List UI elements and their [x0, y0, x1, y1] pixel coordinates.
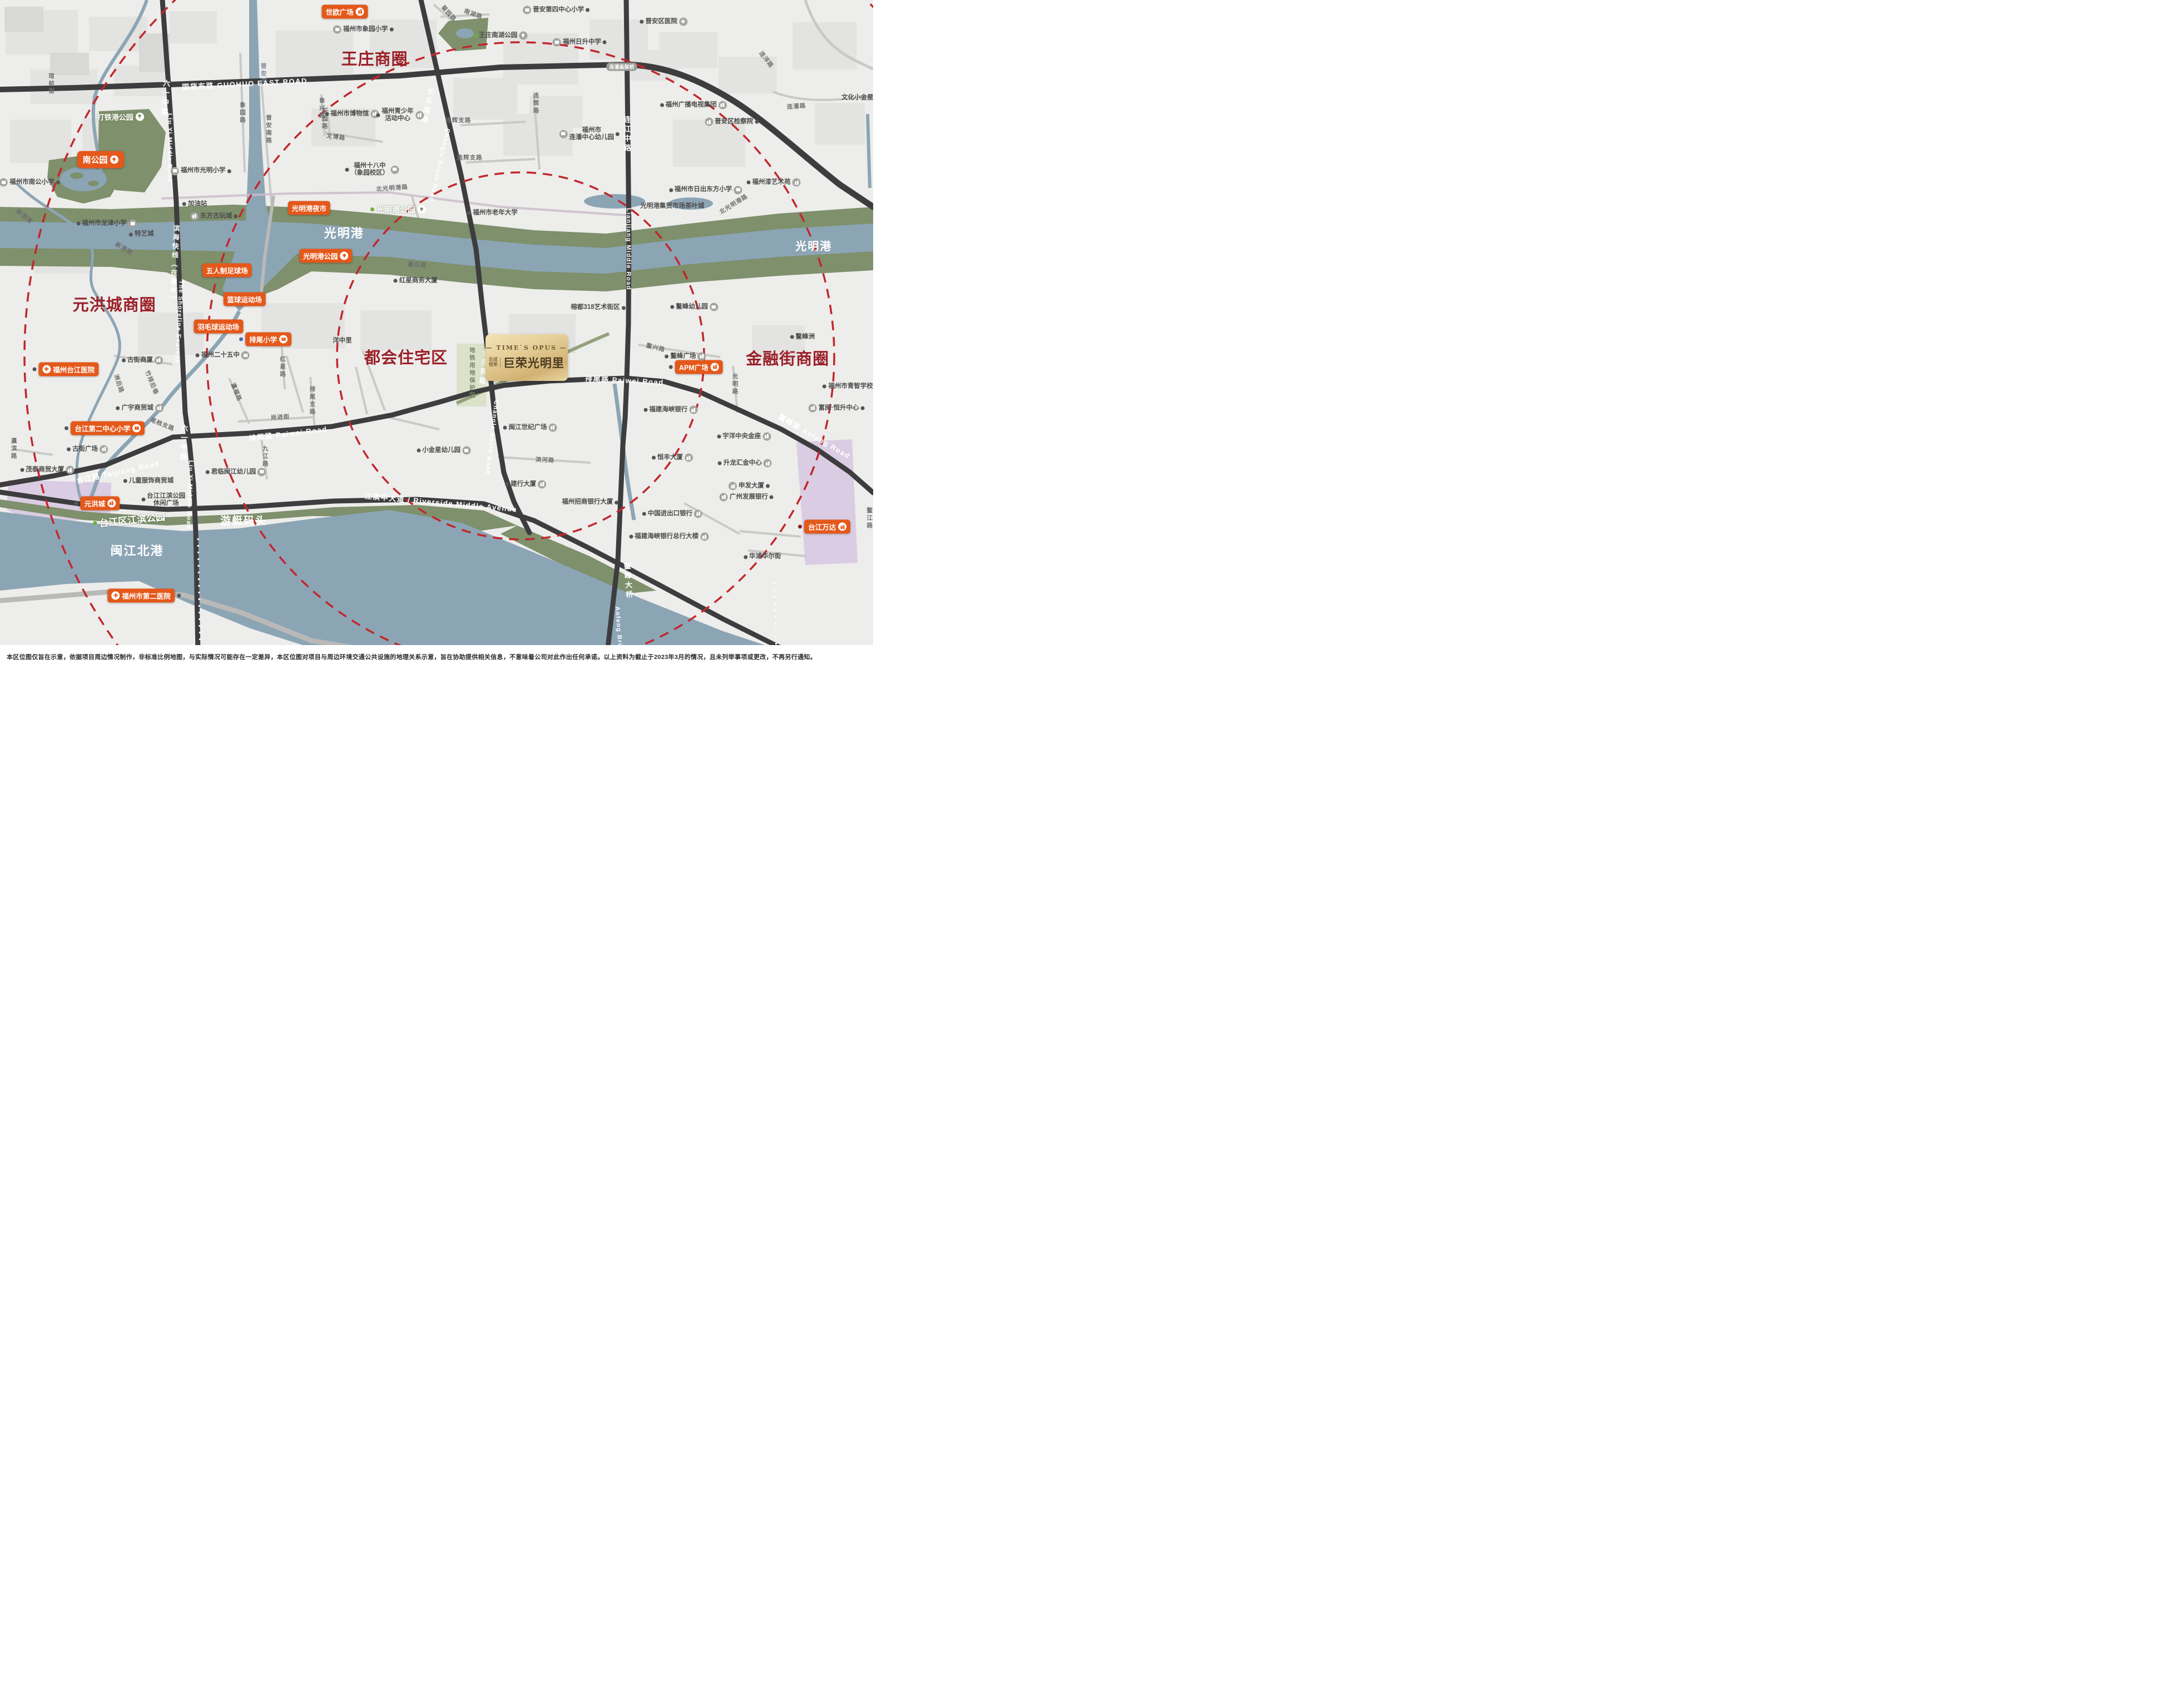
poi-label: 富闽·恒升中心 [809, 404, 865, 412]
label-text: 福州市连潘中心幼儿园 [569, 127, 615, 141]
poi-dot [227, 169, 231, 173]
label-text: 文博路 [326, 132, 346, 142]
label-text: 晋安第四中心小学 [533, 7, 584, 14]
label-text: 福州招商银行大厦 [562, 499, 613, 506]
poi-label: 福建海峡银行 [643, 406, 697, 414]
poi-dot [239, 338, 243, 341]
poi-badge-row: 篮球运动场 [223, 292, 266, 306]
labels-layer: 王庄商圈元洪城商圈都会住宅区金融街商圈光明港光明港闽江北港游艇码头打铁港公园光明… [0, 0, 873, 673]
orange-badge: 福州市第二医院 [107, 588, 175, 602]
book-icon [553, 38, 561, 47]
label-text: 连辉支路 [457, 155, 483, 161]
building-icon [720, 493, 728, 501]
label-text: 连潘高架桥 [609, 63, 634, 70]
label-text: 中国进出口银行 [648, 510, 693, 517]
orange-badge: 羽毛球运动场 [194, 320, 243, 334]
book-icon [257, 468, 266, 476]
poi-dot [766, 484, 770, 488]
cross-icon [111, 591, 120, 599]
book-icon [171, 167, 179, 175]
orange-badge: 元洪城 [81, 496, 120, 510]
poi-label: 福州市博物馆 [325, 110, 379, 118]
building-icon [729, 482, 737, 490]
label-text: 茂泰商贸大厦 [26, 467, 64, 474]
poi-label: 红星商务大厦 [394, 277, 438, 284]
poi-label: 鳌峰洲 [790, 333, 815, 340]
poi-label: 福州市连潘中心幼儿园 [559, 127, 620, 141]
building-icon [548, 423, 557, 432]
label-text: 金融街商圈 [746, 350, 829, 368]
street-name-label: 新港道 [14, 207, 34, 225]
poi-label: 鳌峰广场 [665, 352, 706, 360]
poi-dot [182, 202, 186, 206]
zone-label: 地铁用地保护区 [468, 347, 477, 400]
poi-dot [76, 222, 80, 226]
park-label: 台江区江滨公园 [92, 508, 166, 529]
book-icon [559, 130, 568, 138]
poi-badge-row: 台江第二中心小学 [65, 422, 145, 435]
poi-dot [417, 449, 420, 453]
poi-dot [116, 406, 120, 410]
road-name-label: Lianjiang Middle Road [625, 208, 632, 290]
label-text: 福州青少年活动中心 [382, 108, 414, 122]
poi-dot [177, 593, 181, 597]
poi-dot [670, 305, 674, 309]
poi-badge-row: 南公园 [77, 151, 124, 168]
poi-badge-row: 世欧广场 [322, 4, 368, 18]
park-label: 打铁港公园 [97, 111, 144, 122]
label-text: 光明港公园 [377, 204, 415, 215]
poi-dot [129, 232, 133, 236]
label-text: 福建海峡银行总行大楼 [635, 533, 699, 541]
road-name-label: 鳌峰路 Aofeng Road [777, 411, 853, 460]
park-label: 光明港公园 [370, 204, 426, 215]
book-icon [128, 220, 137, 228]
label-text: 君临闽江幼儿园 [211, 468, 256, 475]
poi-label: 榕都318艺术街区 [571, 304, 625, 311]
project-logo: 巨成 恒荣 [489, 358, 501, 368]
label-text: 鳌江路 [866, 507, 873, 530]
label-text: 竹排后巷 [144, 369, 160, 395]
poi-label: 福州日升中学 [553, 38, 607, 47]
street-name-label: 连辉支路 [457, 153, 483, 162]
label-text: 滨河路 [535, 457, 554, 464]
poi-label: 古街广场 [67, 445, 108, 453]
poi-dot [123, 479, 127, 483]
label-text: 鳌峰路 Aofeng Road [777, 412, 851, 460]
label-text: 南湖路 [463, 8, 484, 21]
poi-dot [389, 28, 393, 32]
label-text: 琯前街 [48, 73, 55, 96]
street-name-label: 北光明港路 [717, 192, 749, 216]
building-icon [694, 509, 702, 518]
mini-badge: 连潘高架桥 [606, 62, 637, 71]
poi-label: 福州广播电视集团 [660, 101, 727, 109]
label-text: 洲后路 [112, 374, 125, 394]
poi-dot [823, 385, 826, 389]
building-icon [711, 363, 719, 371]
poi-dot [196, 354, 200, 358]
label-text: 台江第二中心小学 [75, 423, 130, 434]
poi-badge-row: 福州市第二医院 [107, 588, 181, 602]
poi-label: 福州漆艺术苑 [747, 179, 801, 187]
label-text: 光明港 [795, 240, 832, 252]
poi-label: 台江江滨公园休闲广场 [141, 492, 185, 507]
poi-dot [622, 306, 626, 310]
label-text: 宇洋中央金座 [722, 433, 761, 440]
street-name-label: 光明路 [731, 373, 739, 396]
poi-label: 君临闽江幼儿园 [206, 468, 266, 476]
label-text: 鳌峰幼儿园 [676, 304, 708, 311]
poi-label: 福州市青智学校 [823, 383, 873, 390]
poi-dot [503, 425, 507, 429]
label-text: 北光明港路 [719, 193, 749, 216]
label-text: 台江万达 [808, 522, 836, 532]
project-logo-bottom: 恒荣 [489, 363, 498, 368]
street-name-label: 连洋路 [757, 49, 776, 69]
label-text: 文化小金星幼儿园 [841, 94, 873, 101]
poi-dot [615, 500, 618, 504]
label-text: 福建海峡银行 [649, 407, 687, 414]
street-name-label: 瀛滨路 [10, 437, 18, 460]
street-name-label: 尾档支路 [149, 415, 176, 433]
poi-label: 洋中里 [333, 337, 352, 344]
building-icon [700, 533, 709, 541]
label-text: 福州台江医院 [53, 364, 95, 374]
label-text: 福州市老年大学 [473, 209, 518, 216]
street-name-label: 北光明港路 [376, 182, 408, 193]
orange-badge: 福州台江医院 [38, 362, 98, 376]
book-icon [710, 303, 718, 311]
poi-label: 福州市龙津小学 [76, 220, 137, 228]
poi-dot [93, 521, 97, 525]
poi-dot [67, 447, 71, 451]
orange-badge: 五人制足球场 [202, 263, 252, 277]
label-text: 元洪城 [85, 498, 106, 508]
poi-label: 申发大厦 [729, 482, 770, 490]
river-label: 光明港 [795, 237, 832, 253]
label-text: 瀛福路 [230, 382, 243, 402]
poi-dot [744, 555, 747, 559]
poi-dot [669, 188, 673, 192]
poi-label: 升龙汇金中心 [718, 459, 772, 468]
road-name-label: Liu Yi Middle Road [185, 460, 194, 530]
building-icon [793, 179, 801, 187]
street-name-label: 鳌江路 [865, 507, 873, 530]
label-text: 新港道 [14, 208, 34, 225]
label-text: 台江区江滨公园 [98, 508, 166, 529]
poi-dot [616, 132, 620, 136]
label-text: 洋中里 [333, 337, 352, 344]
building-icon [356, 7, 364, 16]
poi-dot [370, 207, 374, 211]
poi-badge-row: 排尾小学 [239, 333, 291, 346]
street-name-label: 琯前街 [47, 73, 56, 96]
label-text: 瀛滨路 [11, 437, 17, 460]
label-text: APM广场 [679, 361, 709, 372]
project-en-name: — TIME`S OPUS — [486, 344, 567, 351]
street-name-label: 尚进街 [270, 412, 290, 422]
label-text: 打铁港公园 [97, 111, 133, 122]
river-label: 游艇码头 [220, 512, 267, 527]
label-text: 富闽·恒升中心 [819, 404, 859, 412]
label-text: 福州市日出东方小学 [675, 186, 732, 194]
building-icon [155, 404, 164, 412]
poi-dot [629, 535, 633, 539]
poi-label: 小金星幼儿园 [417, 447, 471, 455]
poi-dot [75, 501, 78, 505]
poi-label: 东方古玩城 [190, 212, 238, 220]
label-text: 广州发展银行 [730, 493, 768, 500]
road-name-label: 江滨中大道 / Riverside Middle Avenue [364, 490, 518, 514]
poi-dot [643, 408, 647, 412]
poi-dot [505, 482, 509, 486]
building-icon [809, 404, 817, 412]
label-text: 鳌峰洲 [796, 333, 815, 340]
poi-dot [798, 525, 802, 529]
label-text: 江滨中大道 / Riverside Middle Avenue [364, 492, 518, 514]
label-text: 王庄南湖公园 [479, 32, 517, 39]
label-text: 国货东路 GUOHUO EAST ROAD [182, 77, 308, 92]
poi-badge-row: 福州台江医院 [32, 362, 98, 376]
label-text: Liu Yi Middle Road [185, 460, 194, 530]
label-text: 古街广场 [72, 445, 98, 453]
street-name-label: 鳌兴路 [646, 341, 666, 354]
label-text: 游艇码头 [220, 515, 267, 527]
road-name-label: 六一中路 [177, 424, 189, 463]
label-text: 排尾小学 [249, 334, 277, 345]
orange-badge: 光明港公园 [299, 249, 353, 263]
building-icon [705, 118, 713, 126]
poi-label: 福州市象园小学 [333, 26, 394, 34]
street-name-label: 文博路 [326, 131, 346, 142]
label-text: 台江江滨公园休闲广场 [147, 492, 185, 507]
building-icon [538, 480, 546, 488]
building-icon [685, 454, 693, 462]
poi-label: 光明港集贸市场茶叶城 [640, 202, 704, 210]
poi-label: 儿童服饰商贸城 [123, 477, 174, 484]
district-label: 元洪城商圈 [73, 292, 156, 315]
label-text: 榕都318艺术街区 [571, 304, 620, 311]
label-text: 鳌峰大桥 [622, 562, 633, 601]
book-icon [462, 447, 471, 455]
orange-badge: APM广场 [675, 360, 723, 374]
building-icon [764, 459, 772, 468]
label-text: 晋安区检察院 [715, 118, 753, 126]
building-icon [838, 523, 846, 531]
label-text: 六一中路 [179, 424, 188, 462]
label-text: Changle South Road [484, 400, 499, 475]
poi-badge-row: 光明港夜市 [288, 201, 331, 215]
poi-dot [790, 335, 794, 339]
label-text: 福州市象园小学 [343, 26, 388, 33]
label-text: 福州市博物馆 [330, 110, 369, 117]
label-text: 儿童服饰商贸城 [129, 477, 174, 484]
poi-label: 闽江世纪广场 [503, 423, 557, 432]
label-text: 红星商务大厦 [399, 277, 438, 284]
road-name-label: 国货东路 GUOHUO EAST ROAD [181, 75, 307, 92]
label-text: 六一中路 [160, 79, 170, 117]
street-name-label: 晋安南路 [265, 115, 273, 145]
label-text: 瀛东路 [408, 261, 427, 269]
poi-dot [755, 120, 759, 124]
poi-dot [325, 112, 329, 116]
tree-icon [136, 112, 144, 121]
cross-icon [679, 17, 687, 26]
label-text: 升龙汇金中心 [724, 460, 762, 467]
label-text: 特艺城 [135, 231, 154, 238]
label-text: 九江路 [262, 445, 269, 468]
poi-dot [770, 495, 774, 499]
poi-dot [376, 113, 380, 117]
poi-dot [32, 367, 36, 371]
poi-dot [640, 19, 643, 23]
road-name-label: 六一中路 [159, 79, 171, 117]
label-text: 菊园路 [440, 4, 458, 23]
book-icon [523, 6, 531, 14]
label-text: 福州市第二医院 [122, 590, 171, 601]
poi-badge-row: 元洪城 [75, 496, 120, 510]
street-name-label: 南湖路 [463, 7, 484, 21]
tree-icon [110, 156, 118, 164]
poi-badge-row: 台江万达 [798, 520, 850, 534]
orange-badge: 排尾小学 [245, 333, 291, 346]
label-text: 福州漆艺术苑 [752, 179, 791, 186]
label-text: 申发大厦 [739, 483, 764, 490]
location-map: 王庄商圈元洪城商圈都会住宅区金融街商圈光明港光明港闽江北港游艇码头打铁港公园光明… [0, 0, 873, 673]
river-label: 闽江北港 [110, 541, 164, 559]
poi-label: 宇洋中央金座 [717, 432, 771, 440]
project-name: 巨荣光明里 [503, 354, 564, 371]
label-text: 尾档支路 [149, 417, 175, 432]
label-text: 象园路 [239, 102, 246, 125]
orange-badge: 南公园 [77, 151, 124, 168]
label-text: 连辉路 [532, 92, 539, 115]
label-text: 光明路 [731, 373, 738, 396]
label-text: Changle South Road [428, 127, 451, 202]
label-text: 小金星幼儿园 [422, 447, 460, 454]
poi-label: 文化小金星幼儿园 [841, 94, 873, 101]
label-text: 恒丰大厦 [657, 454, 683, 462]
road-name-label: 排尾路 Paiwei Road [249, 423, 328, 443]
poi-dot [717, 434, 721, 438]
label-text: 福州十八中（象园校区） [350, 162, 389, 177]
poi-dot [718, 462, 722, 465]
label-text: 连洋路 [758, 50, 775, 70]
street-name-label: 连辉路 [532, 92, 540, 115]
book-icon [734, 186, 742, 194]
label-text: 晋安区医院 [645, 18, 677, 25]
label-text: 福州日升中学 [563, 39, 601, 46]
label-text: 都会住宅区 [364, 349, 448, 367]
book-icon [0, 179, 8, 187]
label-text: 鳌峰广场 [670, 353, 696, 360]
poi-dot [603, 41, 607, 44]
book-icon [241, 351, 250, 360]
poi-dot [669, 365, 673, 369]
street-name-label: 红星路 [279, 356, 287, 379]
orange-badge: 台江第二中心小学 [71, 422, 145, 435]
label-text: 晋安南路 [265, 115, 272, 145]
poi-dot [467, 211, 471, 215]
road-name-label: Changle South Road [428, 127, 451, 202]
label-text: 连江中路 [623, 116, 631, 153]
poi-label: 福州二十五中 [196, 351, 250, 360]
book-icon [279, 335, 288, 344]
poi-label: 福州市老年大学 [467, 209, 518, 216]
label-text: 福州市龙津小学 [82, 220, 127, 227]
poi-label: 晋安第四中心小学 [523, 6, 590, 14]
poi-label: 茂泰商贸大厦 [20, 466, 74, 474]
street-name-label: 连辉支路 [445, 116, 471, 124]
tree-icon [519, 32, 527, 40]
label-text: 光明港 [324, 226, 364, 240]
label-text: 闽江北港 [110, 544, 164, 558]
poi-label: 加油站 [182, 200, 207, 207]
label-text: 尚进街 [270, 413, 290, 421]
poi-label: 福州市光明小学 [171, 167, 231, 175]
label-text: 建行大厦 [511, 480, 536, 488]
poi-label: 福州市南公小学 [0, 179, 60, 187]
street-name-label: 排尾支路 [309, 386, 317, 416]
building-icon [689, 406, 697, 414]
cross-icon [42, 365, 51, 373]
project-marker: — TIME`S OPUS — 巨成 恒荣 巨荣光明里 [486, 334, 568, 381]
label-text: 福州市青智学校 [828, 383, 873, 390]
street-name-label: 竹排后巷 [143, 369, 161, 396]
poi-label: 鳌峰幼儿园 [670, 303, 718, 311]
road-name-label: 鳌峰大桥 [621, 562, 635, 600]
label-text: 连辉支路 [445, 117, 471, 123]
poi-badge-row: 羽毛球运动场 [194, 320, 243, 334]
label-text: 古街商厦 [127, 356, 153, 364]
poi-label: 王庄南湖公园 [473, 32, 527, 40]
project-name-row: 巨成 恒荣 巨荣光明里 [489, 354, 564, 371]
street-name-label: 菊园路 [439, 3, 458, 23]
poi-dot [345, 168, 349, 172]
poi-label: 福州招商银行大厦 [562, 499, 618, 506]
poi-dot [141, 498, 145, 502]
label-text: 连潘路 [786, 103, 806, 111]
label-text: 福州广播电视集团 [666, 101, 717, 108]
label-text: 鳌兴路 [646, 342, 666, 353]
label-text: 排尾支路 [309, 386, 316, 416]
street-name-label: 九江路 [261, 445, 270, 468]
poi-label: 福州青少年活动中心 [376, 108, 424, 122]
label-text: 闽江世纪广场 [508, 424, 547, 431]
district-label: 都会住宅区 [364, 345, 448, 368]
poi-dot [473, 34, 477, 38]
poi-dot [660, 103, 664, 107]
label-text: 福州市南公小学 [9, 179, 55, 186]
poi-label: 福州市日出东方小学 [669, 186, 742, 194]
tree-icon [340, 252, 348, 260]
building-icon [107, 499, 116, 507]
poi-label: 福州十八中（象园校区） [345, 162, 399, 177]
book-icon [390, 166, 399, 174]
street-name-label: 滨河路 [535, 455, 554, 465]
building-icon [762, 432, 771, 440]
label-text: 王庄商圈 [341, 51, 408, 68]
poi-label: 建行大厦 [505, 480, 546, 488]
poi-badge-row: 五人制足球场 [202, 263, 252, 277]
poi-badge-row: APM广场 [669, 360, 723, 374]
poi-dot [234, 214, 237, 218]
poi-label: 特艺城 [129, 231, 154, 238]
street-name-label: 连潘路 [786, 102, 806, 111]
street-name-label: 象园路 [239, 102, 247, 125]
road-name-label: 连江中路 [622, 116, 632, 153]
